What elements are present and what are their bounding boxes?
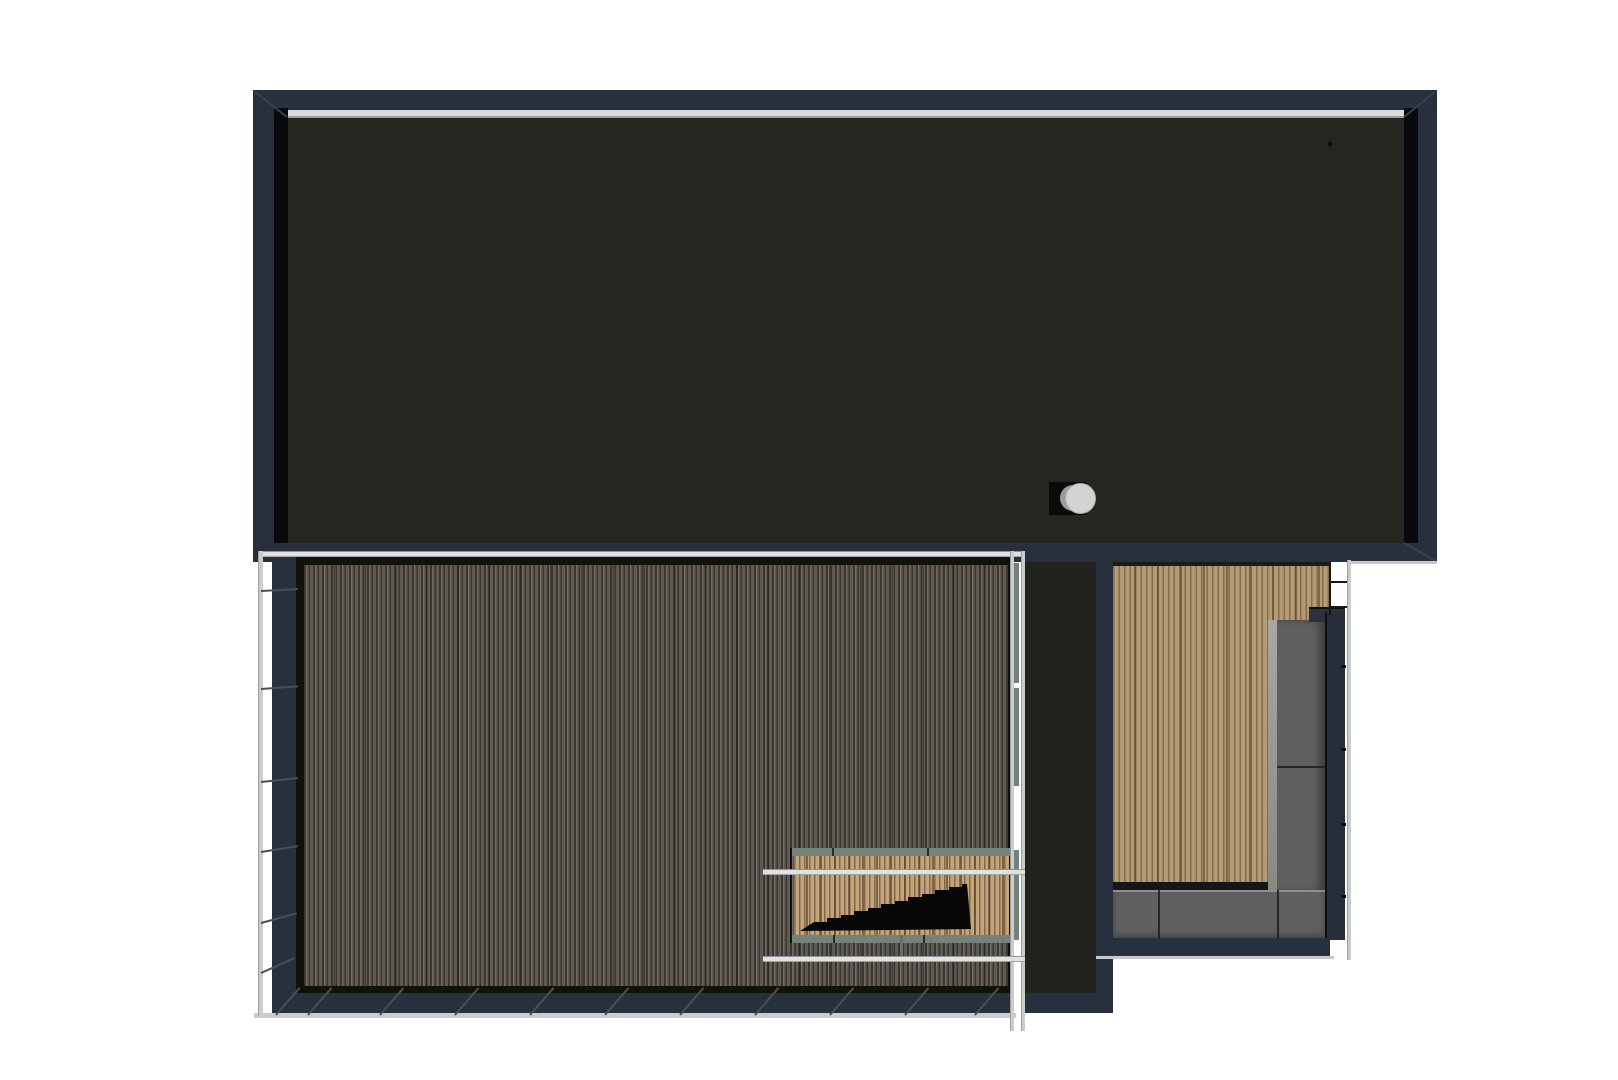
sofa-back-bracket <box>1341 665 1346 668</box>
terrace-railing-left <box>258 551 263 1016</box>
stairs-silhouette <box>800 884 971 931</box>
sofa-back-bracket <box>1341 895 1346 898</box>
sofa-seat-vertical <box>1277 620 1325 892</box>
stair-frame-band-top <box>792 848 1010 856</box>
house-wall-edge-bottom <box>1024 993 1113 1013</box>
sofa-cushion-seam <box>1158 890 1160 938</box>
sofa-back-bracket <box>1341 748 1346 751</box>
stairs-silhouette-svg <box>794 856 1009 935</box>
patio-railing-tick <box>1330 581 1347 583</box>
patio-deck-top-edge <box>1113 562 1330 566</box>
patio-parapet-bottom <box>1113 938 1330 958</box>
stair-guardrail-lower <box>763 956 1025 962</box>
stair-band-seam <box>833 935 835 943</box>
roof-fascia-bottom-highlight <box>1347 561 1437 564</box>
terrace-parapet-left <box>272 557 298 1013</box>
stair-band-seam <box>923 935 925 943</box>
stair-opening-edge <box>790 848 792 943</box>
house-wall-edge-right <box>1096 562 1113 1013</box>
stair-band-seam <box>927 848 929 856</box>
stair-guardrail-upper <box>763 869 1025 875</box>
terrace-base-highlight <box>254 1013 1016 1018</box>
sofa-back-bracket <box>1341 823 1346 826</box>
patio-base-highlight <box>1096 956 1334 959</box>
sofa-edge-highlight <box>1268 620 1277 892</box>
sofa-seat-horizontal <box>1113 890 1325 940</box>
sofa-cushion-seam <box>1277 890 1279 938</box>
render-viewport <box>0 0 1618 1080</box>
sofa-cushion-seam <box>1277 766 1325 768</box>
stair-band-seam <box>832 848 834 856</box>
terrace-railing-top <box>258 551 1024 557</box>
sofa-backrest <box>1325 612 1345 940</box>
patio-railing-right <box>1347 560 1351 960</box>
house-side-wall <box>1024 562 1096 995</box>
patio-railing-tick <box>1330 606 1347 608</box>
